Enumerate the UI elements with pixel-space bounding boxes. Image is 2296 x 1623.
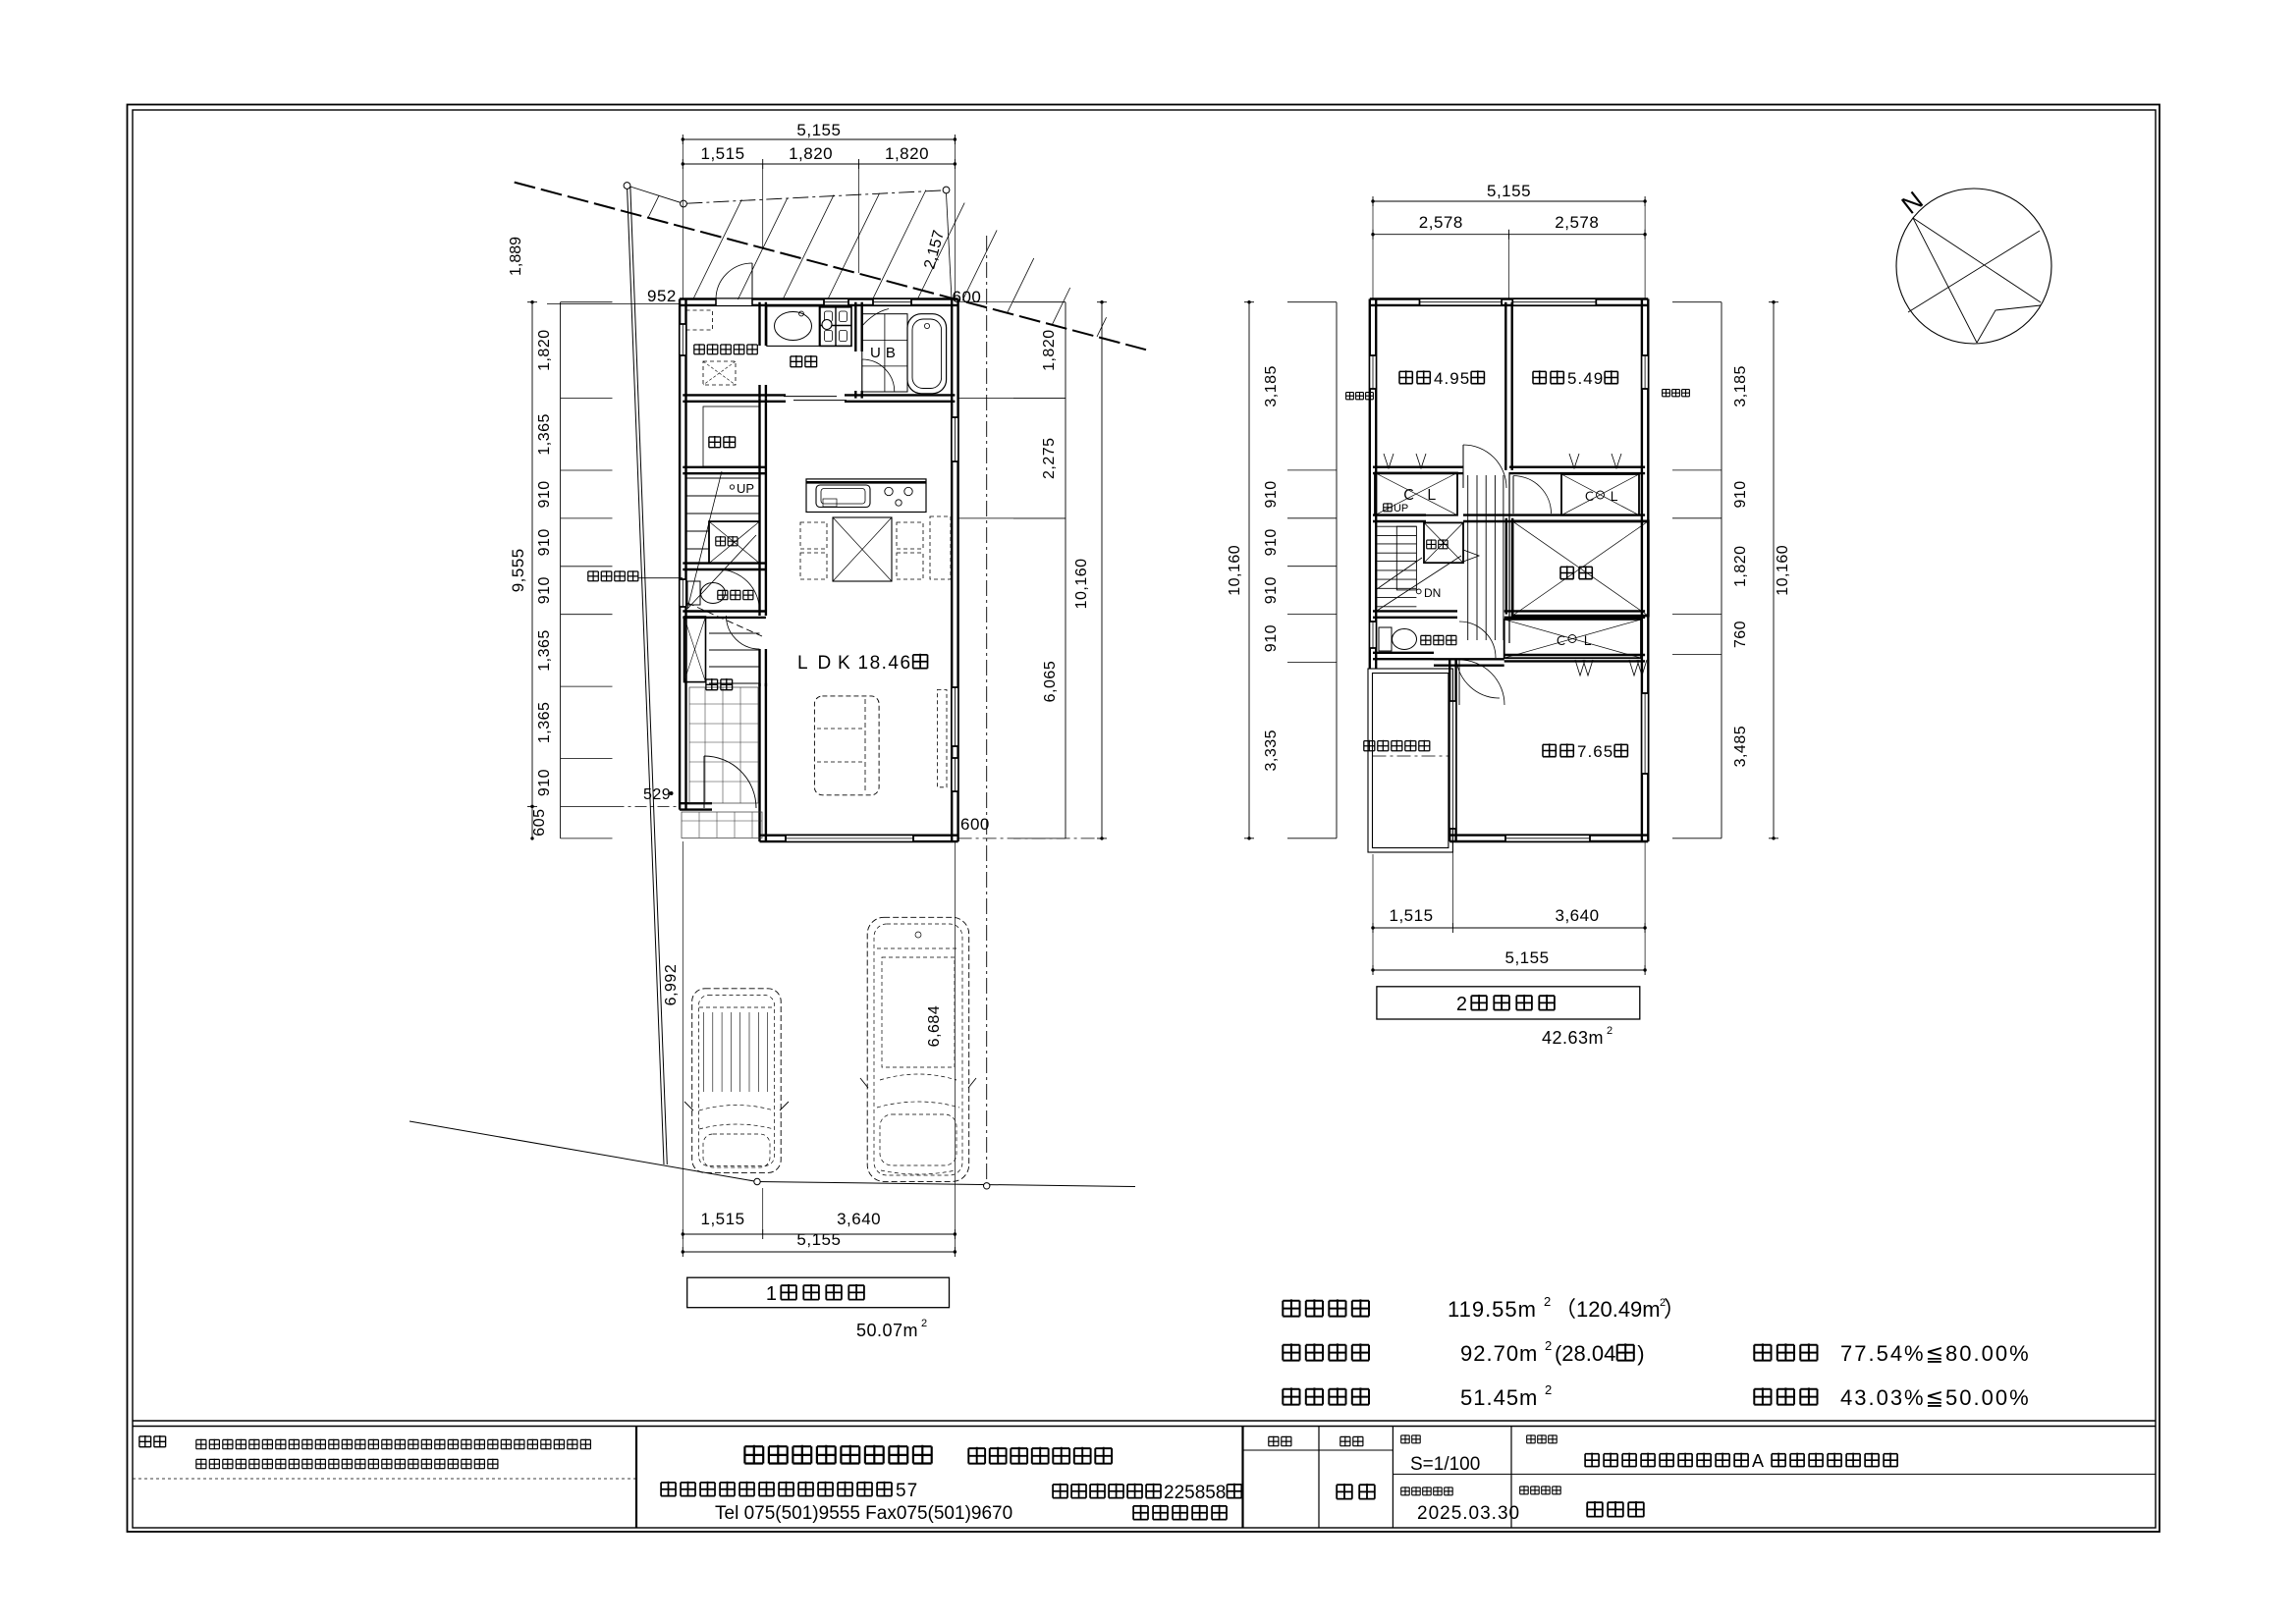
svg-text:51.45m: 51.45m [1460,1385,1538,1410]
svg-text:910: 910 [536,480,553,508]
svg-text:10,160: 10,160 [1073,558,1090,609]
svg-text:L: L [797,653,808,674]
svg-text:P: P [1401,503,1408,514]
svg-text:）: ） [1664,1297,1685,1322]
svg-text:S=1/100: S=1/100 [1410,1454,1480,1475]
svg-text:5: 5 [1460,369,1469,388]
svg-text:6,065: 6,065 [1042,661,1059,703]
svg-text:DN: DN [1424,586,1441,600]
svg-text:7: 7 [907,1481,918,1501]
svg-text:5,155: 5,155 [1505,948,1550,967]
svg-text:9: 9 [1449,369,1458,388]
svg-text:4: 4 [1583,369,1592,388]
svg-text:1,889: 1,889 [508,237,524,276]
svg-text:952: 952 [647,287,677,305]
svg-text:3,185: 3,185 [1263,365,1280,407]
svg-text:3,640: 3,640 [837,1210,881,1228]
svg-text:5,155: 5,155 [796,1230,841,1249]
svg-text:2: 2 [1544,1294,1551,1309]
svg-text:4: 4 [888,653,899,674]
svg-text:910: 910 [1263,480,1280,508]
svg-text:50.07m: 50.07m [856,1321,918,1340]
svg-text:2,275: 2,275 [1041,437,1058,479]
svg-text:92.70m: 92.70m [1460,1341,1538,1366]
svg-text:U: U [1394,503,1401,514]
svg-text:910: 910 [1732,480,1749,508]
svg-text:.: . [1588,742,1593,761]
svg-text:1,515: 1,515 [701,144,745,163]
svg-text:8: 8 [870,653,881,674]
svg-text:.: . [882,653,887,674]
svg-text:5: 5 [1205,1483,1216,1503]
svg-text:5,155: 5,155 [1487,182,1531,200]
svg-text:1,365: 1,365 [536,413,553,456]
svg-text:1,365: 1,365 [536,702,553,744]
svg-text:（120.49m: （120.49m [1555,1297,1661,1322]
svg-text:2: 2 [921,1318,927,1329]
svg-text:600: 600 [960,815,990,834]
svg-text:5: 5 [1184,1483,1195,1503]
svg-text:9: 9 [1594,369,1603,388]
svg-text:8: 8 [1216,1483,1227,1503]
svg-text:Ｃ: Ｃ [1555,633,1567,648]
svg-text:2: 2 [1175,1483,1185,1503]
svg-text:1,820: 1,820 [536,329,553,371]
svg-text:42.63m: 42.63m [1542,1028,1604,1048]
svg-text:Ｌ: Ｌ [1581,633,1594,648]
svg-text:1,365: 1,365 [536,629,553,672]
svg-text:UB: UB [870,345,901,361]
svg-text:1,820: 1,820 [1732,545,1749,587]
svg-text:6: 6 [1593,742,1602,761]
svg-text:2,578: 2,578 [1419,213,1463,232]
svg-text:7: 7 [1577,742,1586,761]
svg-text:.: . [1578,369,1583,388]
svg-text:K: K [838,653,850,674]
svg-text:A: A [1752,1451,1764,1471]
svg-text:1: 1 [766,1283,777,1305]
svg-text:910: 910 [1263,576,1280,604]
svg-text:910: 910 [536,576,553,604]
svg-text:10,160: 10,160 [1227,545,1243,596]
svg-text:.: . [1445,369,1449,388]
svg-text:1,820: 1,820 [789,144,833,163]
svg-text:1,820: 1,820 [885,144,929,163]
svg-text:2: 2 [1456,994,1467,1015]
svg-text:2: 2 [1607,1025,1613,1037]
svg-text:1,515: 1,515 [1390,906,1434,925]
svg-text:8: 8 [1195,1483,1206,1503]
svg-text:Tel 075(501)9555 Fax075(501)9: Tel 075(501)9555 Fax075(501)9670 [715,1503,1012,1524]
svg-text:5,155: 5,155 [796,121,841,139]
svg-text:2025.03.30: 2025.03.30 [1417,1503,1520,1524]
svg-text:2: 2 [1164,1483,1175,1503]
svg-text:1,515: 1,515 [701,1210,745,1228]
svg-text:910: 910 [1263,528,1280,556]
svg-text:8: 8 [1574,1341,1586,1366]
svg-text:9,555: 9,555 [509,548,527,592]
svg-text:5: 5 [1567,369,1576,388]
svg-text:1: 1 [858,653,869,674]
svg-text:3,640: 3,640 [1556,906,1600,925]
svg-text:4: 4 [1434,369,1443,388]
svg-text:77.54%≦80.00%: 77.54%≦80.00% [1840,1341,2031,1366]
svg-text:UP: UP [737,481,754,496]
svg-text:43.03%≦50.00%: 43.03%≦50.00% [1840,1385,2031,1410]
svg-text:6: 6 [901,653,911,674]
svg-text:Ｌ: Ｌ [1608,489,1620,504]
svg-text:2: 2 [1545,1338,1552,1353]
svg-text:6,992: 6,992 [663,964,680,1006]
svg-text:4: 4 [1604,1341,1615,1366]
svg-text:2,578: 2,578 [1555,213,1599,232]
svg-text:910: 910 [536,528,553,556]
svg-text:910: 910 [536,769,553,796]
svg-text:Ｃ Ｌ: Ｃ Ｌ [1401,487,1441,504]
svg-text:600: 600 [953,288,982,306]
svg-text:605: 605 [531,808,548,836]
svg-text:1,820: 1,820 [1041,329,1058,371]
svg-text:119.55m: 119.55m [1448,1297,1537,1322]
svg-text:10,160: 10,160 [1775,545,1791,596]
svg-text:760: 760 [1732,621,1749,648]
svg-text:5: 5 [896,1481,906,1501]
svg-text:Ｃ: Ｃ [1583,489,1596,504]
svg-text:D: D [818,653,832,674]
svg-text:529: 529 [643,786,671,803]
svg-text:6,684: 6,684 [926,1005,943,1048]
svg-text:3,335: 3,335 [1263,730,1280,772]
svg-text:3,185: 3,185 [1732,365,1749,407]
svg-text:910: 910 [1263,624,1280,652]
svg-text:5: 5 [1604,742,1613,761]
svg-text:0: 0 [1592,1341,1604,1366]
svg-text:3,485: 3,485 [1732,726,1749,768]
svg-text:2: 2 [1561,1341,1573,1366]
svg-text:2: 2 [1545,1382,1552,1397]
svg-text:): ) [1637,1341,1644,1366]
